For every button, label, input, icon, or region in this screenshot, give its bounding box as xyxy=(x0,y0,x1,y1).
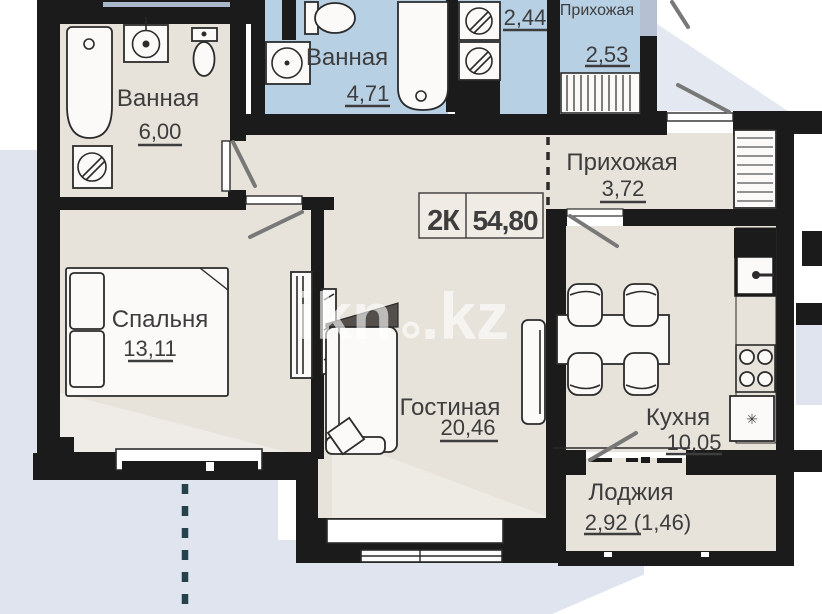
svg-text:2,44: 2,44 xyxy=(504,5,547,30)
svg-text:3,72: 3,72 xyxy=(602,176,645,201)
svg-text:✳: ✳ xyxy=(746,411,758,427)
svg-text:Прихожая: Прихожая xyxy=(566,149,677,176)
svg-text:13,11: 13,11 xyxy=(123,336,176,361)
svg-text:10,05: 10,05 xyxy=(666,430,721,455)
svg-text:54,80: 54,80 xyxy=(472,205,537,236)
svg-text:Спальня: Спальня xyxy=(112,306,208,333)
svg-text:Ванная: Ванная xyxy=(306,44,388,71)
svg-text:Лоджия: Лоджия xyxy=(588,479,673,506)
svg-text:Ванная: Ванная xyxy=(117,85,199,112)
svg-text:2,53: 2,53 xyxy=(586,42,629,67)
svg-text:20,46: 20,46 xyxy=(440,415,495,440)
svg-text:Кухня: Кухня xyxy=(646,404,710,431)
svg-text:2К: 2К xyxy=(427,205,460,237)
svg-text:4,71: 4,71 xyxy=(347,81,390,106)
svg-text:Прихожая: Прихожая xyxy=(560,2,634,19)
svg-text:.kz: .kz xyxy=(421,279,509,353)
svg-text:2,92 (1,46): 2,92 (1,46) xyxy=(585,510,691,535)
svg-text:6,00: 6,00 xyxy=(139,119,182,144)
svg-text:ikn: ikn xyxy=(297,279,392,353)
